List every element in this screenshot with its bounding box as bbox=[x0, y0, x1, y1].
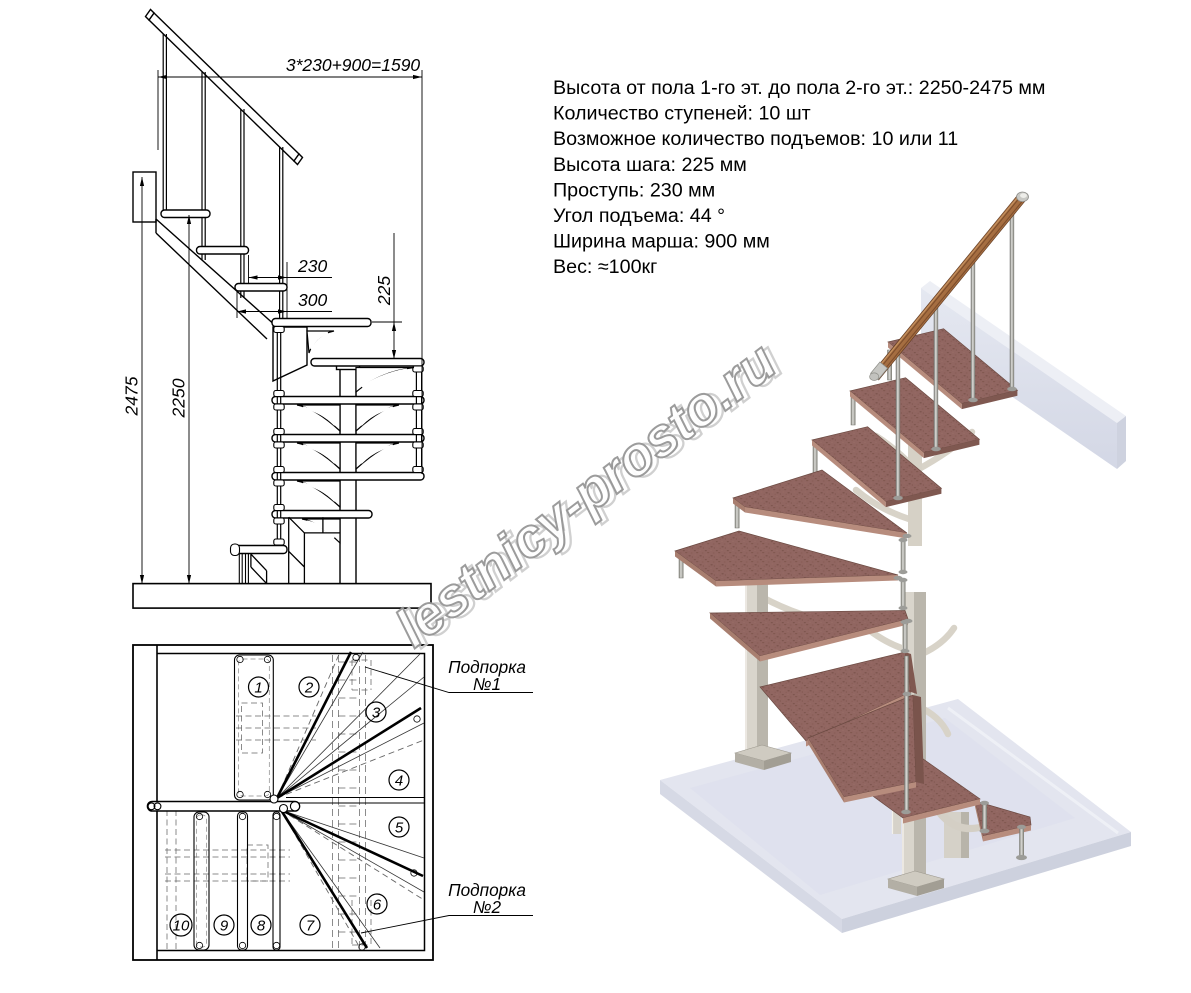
svg-text:230: 230 bbox=[297, 256, 327, 276]
svg-text:2250: 2250 bbox=[169, 378, 189, 418]
svg-text:Возможное количество подъемов:: Возможное количество подъемов: 10 или 11 bbox=[553, 128, 958, 150]
svg-text:4: 4 bbox=[395, 773, 403, 790]
svg-text:6: 6 bbox=[373, 897, 382, 914]
svg-text:10: 10 bbox=[173, 918, 190, 935]
svg-text:300: 300 bbox=[298, 290, 327, 310]
svg-text:№1: №1 bbox=[473, 674, 501, 694]
svg-text:Ширина марша: 900 мм: Ширина марша: 900 мм bbox=[553, 231, 770, 253]
svg-text:Высота от пола 1-го эт. до пол: Высота от пола 1-го эт. до пола 2-го эт.… bbox=[553, 77, 1045, 99]
svg-text:1: 1 bbox=[254, 680, 262, 697]
svg-text:Проступь: 230 мм: Проступь: 230 мм bbox=[553, 179, 715, 201]
svg-text:№2: №2 bbox=[473, 897, 502, 917]
svg-text:Угол подъема: 44 °: Угол подъема: 44 ° bbox=[553, 205, 725, 227]
svg-text:9: 9 bbox=[220, 918, 229, 935]
svg-text:Высота шага: 225 мм: Высота шага: 225 мм bbox=[553, 154, 747, 176]
svg-text:5: 5 bbox=[395, 820, 404, 837]
svg-text:lestnicy-prosto.ru: lestnicy-prosto.ru bbox=[384, 331, 787, 659]
svg-text:7: 7 bbox=[306, 918, 315, 935]
svg-text:2475: 2475 bbox=[122, 376, 142, 416]
svg-text:Вес: ≈100кг: Вес: ≈100кг bbox=[553, 256, 657, 278]
svg-text:3*230+900=1590: 3*230+900=1590 bbox=[286, 55, 421, 75]
svg-text:3: 3 bbox=[372, 705, 381, 722]
svg-text:Количество ступеней: 10 шт: Количество ступеней: 10 шт bbox=[553, 103, 811, 125]
svg-text:2: 2 bbox=[304, 680, 314, 697]
svg-text:8: 8 bbox=[257, 918, 266, 935]
svg-text:225: 225 bbox=[374, 276, 394, 306]
